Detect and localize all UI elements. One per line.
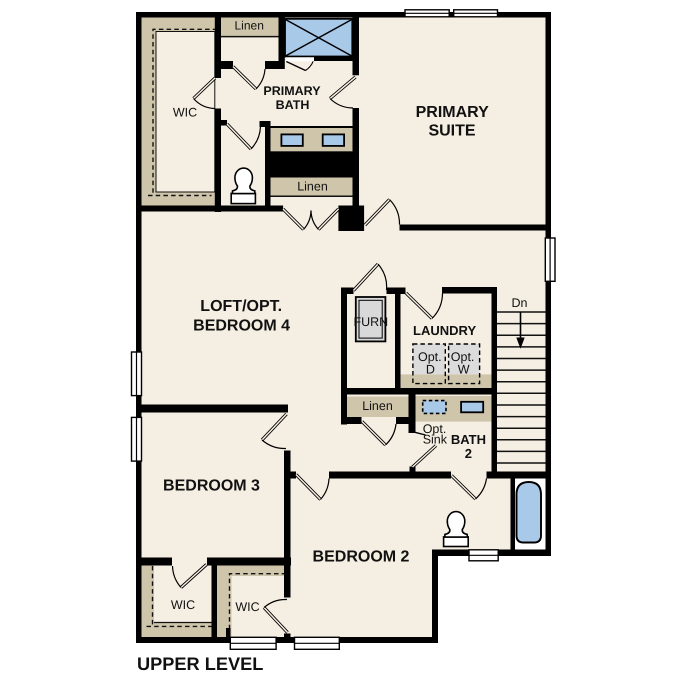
svg-text:BEDROOM 4: BEDROOM 4 (193, 318, 290, 335)
svg-text:SUITE: SUITE (428, 123, 475, 140)
svg-text:BEDROOM 3: BEDROOM 3 (163, 478, 260, 495)
svg-text:W: W (458, 362, 470, 376)
svg-text:BATH: BATH (451, 432, 486, 447)
svg-text:Sink: Sink (423, 433, 448, 447)
svg-text:WIC: WIC (171, 598, 195, 612)
svg-text:LOFT/OPT.: LOFT/OPT. (200, 298, 282, 315)
svg-text:WIC: WIC (173, 106, 197, 120)
svg-text:WIC: WIC (235, 600, 259, 614)
svg-text:PRIMARY: PRIMARY (263, 84, 321, 98)
svg-text:LAUNDRY: LAUNDRY (413, 323, 476, 338)
svg-text:UPPER LEVEL: UPPER LEVEL (137, 654, 263, 674)
svg-text:Linen: Linen (362, 399, 393, 413)
svg-text:Linen: Linen (235, 19, 264, 33)
svg-text:BEDROOM 2: BEDROOM 2 (313, 549, 410, 566)
svg-text:2: 2 (465, 446, 472, 461)
svg-text:D: D (426, 362, 435, 376)
svg-text:Linen: Linen (297, 180, 328, 194)
svg-text:Dn: Dn (512, 296, 528, 310)
svg-text:PRIMARY: PRIMARY (416, 104, 490, 121)
svg-text:FURN: FURN (353, 315, 388, 329)
svg-text:BATH: BATH (276, 98, 310, 112)
